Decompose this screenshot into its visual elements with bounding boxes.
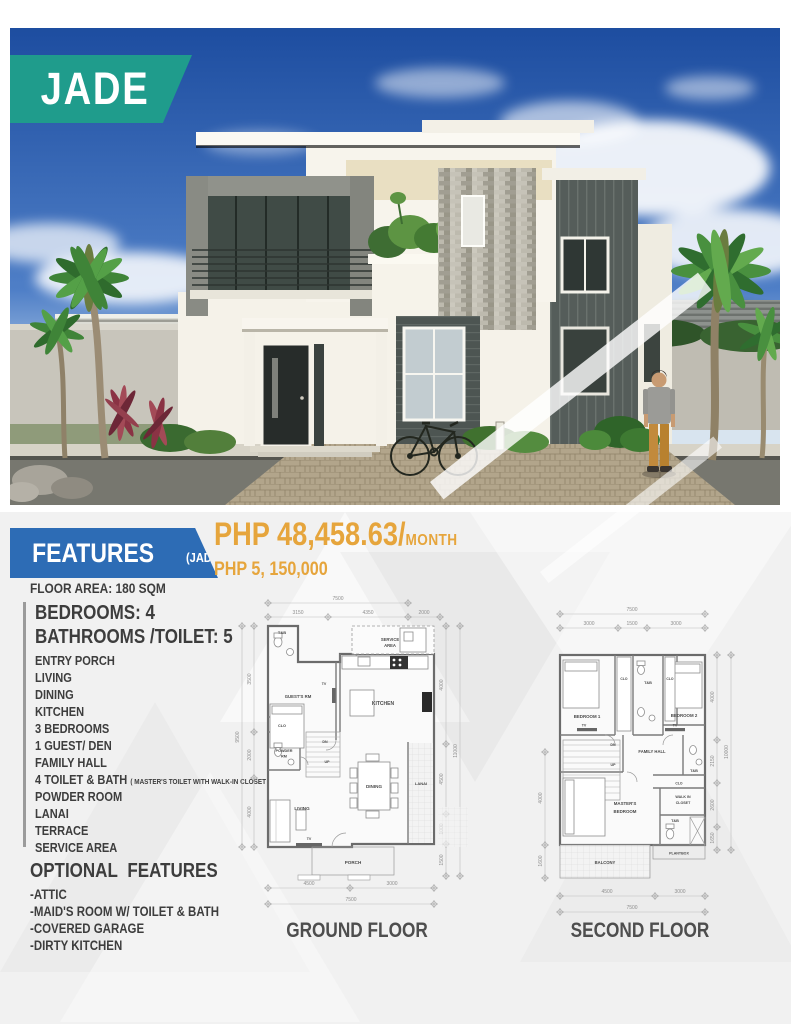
room-label-service2: AREA — [384, 643, 396, 648]
optional-feature-item: -ATTIC — [30, 886, 252, 903]
total-price: PHP 5, 150,000 — [214, 559, 328, 581]
room-label-family-hall: FAMILY HALL — [638, 749, 666, 754]
room-label-dn: DN — [322, 740, 328, 744]
room-label-tv1: TV — [322, 682, 327, 686]
optional-feature-item: -COVERED GARAGE — [30, 920, 252, 937]
room-label-bedroom1: BEDROOM 1 — [574, 714, 601, 719]
upper-window — [562, 238, 608, 292]
room-label-service: SERVICE — [381, 637, 400, 642]
room-label-walkin2: CLOSET — [676, 801, 691, 805]
dimension-label: 3000 — [670, 621, 681, 627]
optional-feature-item: -DIRTY KITCHEN — [30, 937, 252, 954]
flyer-page: JADE FEATURES (JADE) PHP 48,458.63/MONTH… — [0, 0, 791, 1024]
room-label-balcony: BALCONY — [595, 860, 616, 865]
optional-feature-item: -MAID'S ROOM W/ TOILET & BATH — [30, 903, 252, 920]
dimension-label: 7500 — [626, 905, 637, 911]
entry-door — [262, 344, 324, 446]
dimension-label: 4500 — [439, 773, 445, 784]
porch-column — [244, 332, 255, 446]
dimension-label: 4350 — [362, 610, 373, 616]
features-title: FEATURES — [10, 538, 154, 569]
ground-floor-plan: 7500 3150 4350 2000 3500 2000 4000 9500 … — [232, 592, 482, 917]
dimension-label: 4500 — [303, 881, 314, 887]
dimension-label: 2000 — [418, 610, 429, 616]
room-label-clo3: CLO — [675, 782, 683, 786]
room-label-clo: CLO — [278, 724, 286, 728]
monthly-unit: MONTH — [406, 532, 458, 549]
room-label-tb2: T&B — [690, 769, 698, 773]
dimension-label: 11000 — [453, 744, 459, 758]
dimension-label: 3150 — [292, 610, 303, 616]
room-label-clo1: CLO — [620, 677, 628, 681]
room-label-walkin1: WALK IN — [675, 795, 691, 799]
dimension-label: 1500 — [439, 854, 445, 865]
price-block: PHP 48,458.63/MONTH PHP 5, 150,000 — [214, 517, 501, 581]
dimension-label: 2600 — [710, 799, 716, 810]
porch-column — [376, 332, 387, 446]
dimension-label: 7500 — [345, 897, 356, 903]
room-label-dining: DINING — [366, 784, 383, 789]
second-floor-title: SECOND FLOOR — [505, 919, 775, 943]
ground-floor-title: GROUND FLOOR — [232, 919, 482, 943]
dimension-label: 3000 — [386, 881, 397, 887]
dimension-label: 2000 — [247, 749, 253, 760]
dimension-label: 3000 — [674, 889, 685, 895]
room-label-tb1: T&B — [644, 681, 652, 685]
room-label-tv2: TV — [307, 837, 312, 841]
lanai-floor — [409, 743, 433, 843]
model-name-banner: JADE — [10, 55, 192, 123]
room-label-powder2: RM — [281, 755, 287, 759]
dimension-label: 1650 — [710, 832, 716, 843]
dimension-label: 2150 — [710, 755, 716, 766]
dimension-label: 7500 — [626, 607, 637, 613]
room-label-lanai: LANAI — [415, 781, 427, 786]
room-label-living: LIVING — [294, 806, 310, 811]
room-label-clo2: CLO — [666, 677, 674, 681]
list-accent-bar — [23, 602, 26, 847]
lower-window-right — [562, 328, 608, 394]
balcony — [186, 176, 374, 316]
dark-siding-volume — [550, 178, 638, 444]
bollard — [496, 422, 504, 450]
model-name: JADE — [10, 63, 149, 115]
room-label-tv1: TV — [582, 724, 587, 728]
room-label-kitchen: KITCHEN — [372, 701, 395, 707]
dimension-label: 1600 — [538, 855, 544, 866]
dimension-label: 4000 — [247, 806, 253, 817]
room-label-tv2: TV — [673, 724, 678, 728]
bedrooms-count: BEDROOMS: 4 — [35, 602, 176, 625]
features-header-banner: FEATURES (JADE) — [10, 528, 218, 578]
room-label-master1: MASTER'S — [614, 801, 637, 806]
dimension-label: 3000 — [583, 621, 594, 627]
room-label-bedroom2: BEDROOM 2 — [671, 713, 698, 718]
dimension-label: 7500 — [332, 596, 343, 602]
dimension-label: 9500 — [235, 731, 241, 742]
dimension-label: 4500 — [601, 889, 612, 895]
monthly-price: PHP 48,458.63/ — [214, 516, 406, 552]
room-label-dn: DN — [610, 743, 616, 747]
room-label-tb3: T&B — [671, 819, 679, 823]
dimension-label: 4000 — [439, 679, 445, 690]
optional-features-title: OPTIONAL FEATURES — [30, 860, 251, 883]
stone-wall — [438, 168, 536, 330]
dimension-label: 10000 — [724, 745, 730, 759]
room-label-tb: T&B — [278, 630, 286, 635]
dimension-label: 4000 — [538, 792, 544, 803]
dimension-label: 1500 — [626, 621, 637, 627]
dimension-label: 3500 — [247, 673, 253, 684]
room-label-up: UP — [325, 760, 331, 764]
room-label-porch: PORCH — [345, 860, 362, 865]
ground-window — [404, 328, 464, 420]
optional-features-list: -ATTIC -MAID'S ROOM W/ TOILET & BATH -CO… — [30, 886, 252, 954]
second-floor-plan: 7500 3000 1500 3000 4000 1600 4000 2150 … — [505, 600, 775, 925]
dimension-label: 4000 — [710, 691, 716, 702]
room-label-powder: POWDER — [275, 749, 292, 753]
room-label-master2: BEDROOM — [614, 809, 637, 814]
room-label-up: UP — [611, 763, 617, 767]
room-label-plantbox: PLANTBOX — [669, 852, 689, 856]
floor-area: FLOOR AREA: 180 SQM — [30, 580, 190, 596]
room-label-guest: GUEST'S RM — [285, 694, 312, 699]
terrace-floor — [438, 807, 468, 847]
